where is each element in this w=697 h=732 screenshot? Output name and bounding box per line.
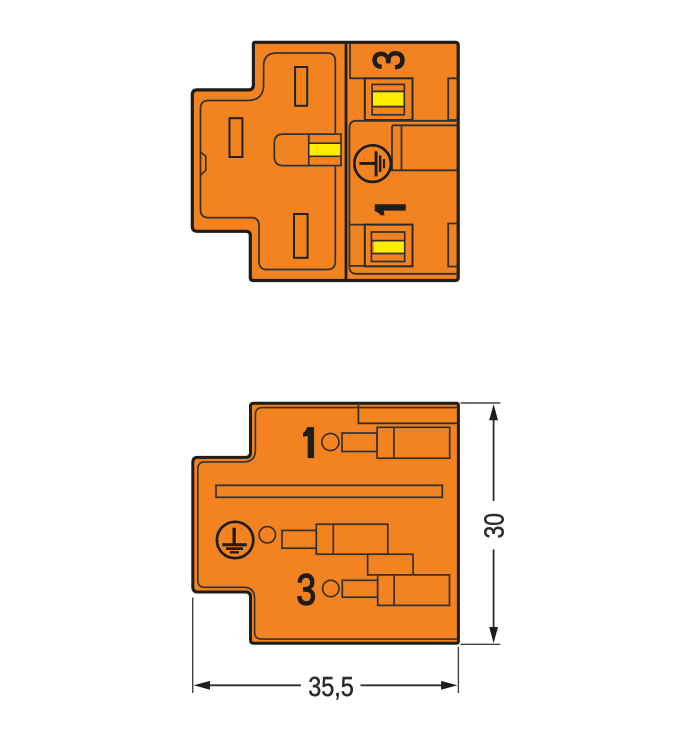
svg-text:3: 3 (365, 50, 414, 70)
svg-text:3: 3 (296, 566, 316, 614)
svg-text:30: 30 (478, 513, 509, 539)
svg-text:35,5: 35,5 (308, 671, 354, 702)
